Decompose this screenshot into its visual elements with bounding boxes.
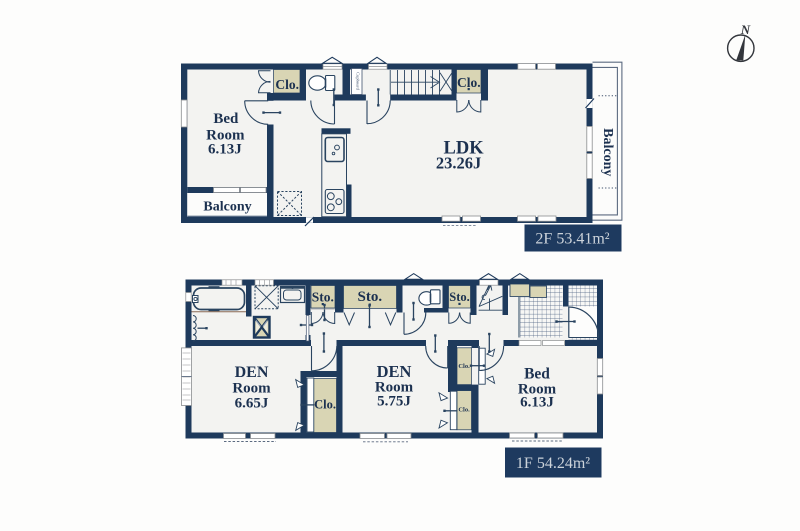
svg-text:6.65J: 6.65J — [235, 395, 269, 411]
svg-text:6.13J: 6.13J — [208, 142, 242, 158]
svg-text:23.26J: 23.26J — [436, 154, 481, 173]
svg-text:Clo.: Clo. — [314, 398, 336, 412]
svg-text:1F 54.24m²: 1F 54.24m² — [516, 455, 590, 472]
svg-text:Room: Room — [232, 381, 271, 397]
svg-text:Clo.: Clo. — [458, 363, 470, 370]
svg-text:Sto.: Sto. — [449, 290, 470, 304]
svg-text:Balcony: Balcony — [600, 128, 615, 176]
svg-text:DEN: DEN — [377, 362, 412, 381]
svg-text:Clo.: Clo. — [275, 77, 299, 92]
svg-text:Sto.: Sto. — [358, 289, 383, 305]
svg-text:5.75J: 5.75J — [377, 394, 411, 410]
svg-text:2F 53.41m²: 2F 53.41m² — [535, 230, 609, 247]
svg-text:DEN: DEN — [235, 364, 269, 381]
svg-text:Bed: Bed — [524, 366, 550, 383]
svg-text:Clo.: Clo. — [457, 75, 481, 90]
svg-text:Sto.: Sto. — [312, 289, 334, 304]
svg-text:Cupboard: Cupboard — [356, 72, 361, 90]
svg-text:Clo.: Clo. — [458, 407, 470, 414]
svg-text:6.13J: 6.13J — [520, 395, 554, 411]
svg-text:Bed: Bed — [213, 111, 239, 127]
svg-text:Balcony: Balcony — [203, 200, 251, 215]
svg-text:N: N — [740, 22, 751, 37]
